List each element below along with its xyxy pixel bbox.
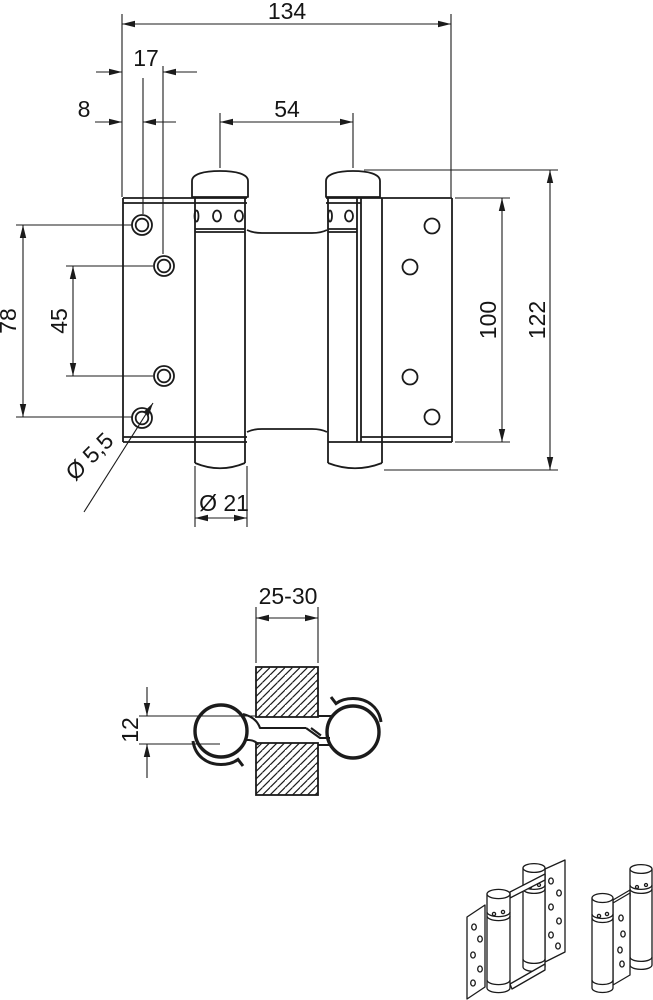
arrowhead bbox=[547, 457, 553, 470]
extension-line bbox=[256, 607, 318, 663]
left-spring-barrel bbox=[192, 171, 248, 468]
arrowhead bbox=[70, 266, 76, 279]
dim-8-label: 8 bbox=[78, 96, 91, 122]
barrel-collar-lines bbox=[195, 229, 245, 232]
arrowhead bbox=[163, 69, 176, 75]
dimension-leaf-height: 100 bbox=[455, 198, 510, 442]
barrel-section-right bbox=[327, 706, 379, 758]
extension-line bbox=[66, 266, 153, 376]
dim-25-30-label: 25-30 bbox=[259, 583, 318, 609]
iso-front-barrel bbox=[487, 889, 510, 992]
screw-hole bbox=[132, 215, 152, 235]
screw-hole bbox=[425, 219, 440, 234]
screw-hole bbox=[154, 366, 174, 386]
arrowhead bbox=[305, 615, 318, 621]
screw-hole bbox=[403, 260, 418, 275]
screw-hole bbox=[403, 370, 418, 385]
dim-17-label: 17 bbox=[133, 45, 159, 71]
arrowhead bbox=[70, 363, 76, 376]
frame-leaf-bottom-edges bbox=[328, 437, 452, 442]
iso-right-plate bbox=[545, 860, 565, 962]
door-section-upper bbox=[256, 667, 318, 717]
arrowhead bbox=[547, 170, 553, 183]
dim-122-label: 122 bbox=[524, 301, 550, 339]
arrowhead bbox=[438, 21, 451, 27]
barrel-collar-lines bbox=[328, 229, 357, 232]
wrap-bottom-edge bbox=[247, 429, 327, 432]
iso-back-barrel bbox=[630, 865, 652, 970]
frame-leaf-plate bbox=[326, 198, 452, 442]
thumbnail-hinge-1 bbox=[467, 860, 565, 999]
leaf-section-lines bbox=[243, 714, 331, 745]
screw-hole bbox=[154, 256, 174, 276]
arrowhead bbox=[340, 119, 353, 125]
barrel-bottom-arc bbox=[328, 463, 382, 468]
dia-5-5-label: Ø 5,5 bbox=[60, 427, 118, 485]
arrowhead bbox=[143, 119, 156, 125]
arrowhead bbox=[109, 69, 122, 75]
front-view: 134 17 8 54 bbox=[0, 0, 558, 527]
leaf-bottom-edges bbox=[123, 437, 247, 442]
dimension-hole-column-2: 17 bbox=[96, 45, 197, 254]
arrowhead bbox=[220, 119, 233, 125]
barrel-sides bbox=[328, 198, 382, 463]
left-leaf-plate bbox=[123, 198, 247, 442]
dia-21-label: Ø 21 bbox=[199, 490, 249, 516]
technical-drawing-svg: 134 17 8 54 bbox=[0, 0, 653, 1000]
leaf-top-edges bbox=[123, 198, 247, 203]
dimension-hole-row-inner-span: 45 bbox=[46, 266, 153, 376]
arrowhead bbox=[144, 703, 150, 716]
center-wrap-section bbox=[247, 230, 327, 432]
wrap-edge-lines bbox=[357, 198, 361, 442]
adjustment-hole bbox=[195, 211, 199, 222]
arrowhead bbox=[122, 21, 135, 27]
dimension-barrel-diameter: Ø 21 bbox=[195, 466, 249, 527]
dimension-door-thickness: 25-30 bbox=[256, 583, 318, 663]
frame-leaf-top-edges bbox=[326, 198, 452, 203]
right-spring-barrel bbox=[326, 171, 382, 468]
callout-screw-hole-diameter: Ø 5,5 bbox=[60, 403, 153, 512]
dim-45-label: 45 bbox=[46, 308, 72, 334]
arrowhead bbox=[109, 119, 122, 125]
arrowhead bbox=[499, 198, 505, 211]
barrel-sides bbox=[195, 198, 245, 463]
dim-12-label: 12 bbox=[117, 717, 143, 743]
arrowhead bbox=[499, 429, 505, 442]
technical-drawing-page: 134 17 8 54 bbox=[0, 0, 653, 1000]
dim-100-label: 100 bbox=[475, 301, 501, 339]
arrowhead bbox=[256, 615, 269, 621]
iso-center-plate bbox=[613, 893, 630, 985]
dimension-leaf-offset: 12 bbox=[117, 687, 256, 778]
dim-78-label: 78 bbox=[0, 308, 21, 334]
arrowhead bbox=[144, 744, 150, 757]
dimension-overall-height: 122 bbox=[364, 170, 558, 470]
dim-54-label: 54 bbox=[274, 96, 300, 122]
dim-134-label: 134 bbox=[268, 0, 307, 24]
barrel-section-left bbox=[195, 705, 247, 757]
wrap-top-edge bbox=[247, 230, 327, 233]
thumbnail-hinge-2 bbox=[592, 865, 652, 993]
arrowhead bbox=[20, 404, 26, 417]
barrel-cap bbox=[326, 171, 380, 197]
barrel-bottom-arc bbox=[195, 463, 245, 468]
arrowhead bbox=[20, 225, 26, 238]
dimension-barrel-spacing: 54 bbox=[220, 96, 353, 168]
section-view: 25-30 12 bbox=[117, 583, 381, 795]
adjustment-hole bbox=[235, 211, 243, 222]
adjustment-hole bbox=[213, 211, 221, 222]
adjustment-hole bbox=[328, 211, 332, 222]
dimension-hole-column-1: 8 bbox=[78, 78, 176, 214]
screw-hole bbox=[425, 410, 440, 425]
door-section-lower bbox=[256, 743, 318, 795]
iso-left-plate bbox=[467, 905, 485, 999]
iso-front-barrel bbox=[592, 894, 613, 993]
extension-line bbox=[16, 225, 132, 417]
adjustment-hole bbox=[345, 211, 353, 222]
barrel-cap bbox=[192, 171, 248, 197]
product-thumbnails bbox=[467, 860, 652, 999]
